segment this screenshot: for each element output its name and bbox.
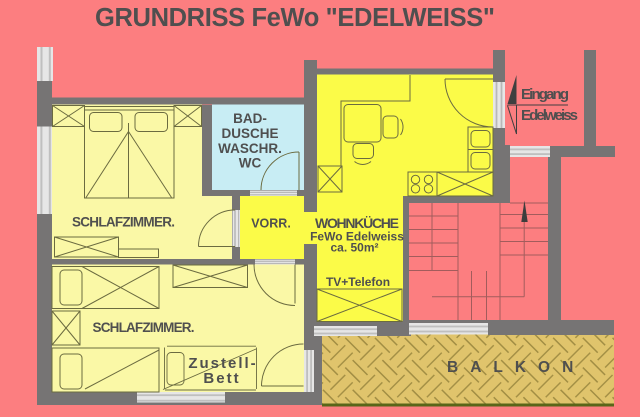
svg-text:GRUNDRISS FeWo "EDELWEISS": GRUNDRISS FeWo "EDELWEISS" (95, 4, 495, 32)
svg-text:WASCHR.: WASCHR. (218, 141, 282, 156)
svg-text:Eingang: Eingang (521, 86, 569, 103)
svg-text:BAD-: BAD- (233, 111, 267, 126)
svg-text:SCHLAFZIMMER.: SCHLAFZIMMER. (72, 215, 175, 230)
svg-text:Edelweiss: Edelweiss (521, 107, 578, 124)
svg-text:SCHLAFZIMMER.: SCHLAFZIMMER. (93, 320, 195, 335)
svg-text:DUSCHE: DUSCHE (221, 126, 278, 141)
svg-text:VORR.: VORR. (251, 217, 291, 231)
svg-text:WC: WC (239, 156, 262, 171)
svg-text:TV+Telefon: TV+Telefon (326, 275, 390, 289)
svg-text:BALKON: BALKON (447, 359, 585, 376)
svg-text:Bett: Bett (203, 370, 240, 387)
svg-text:ca. 50m²: ca. 50m² (330, 241, 378, 255)
